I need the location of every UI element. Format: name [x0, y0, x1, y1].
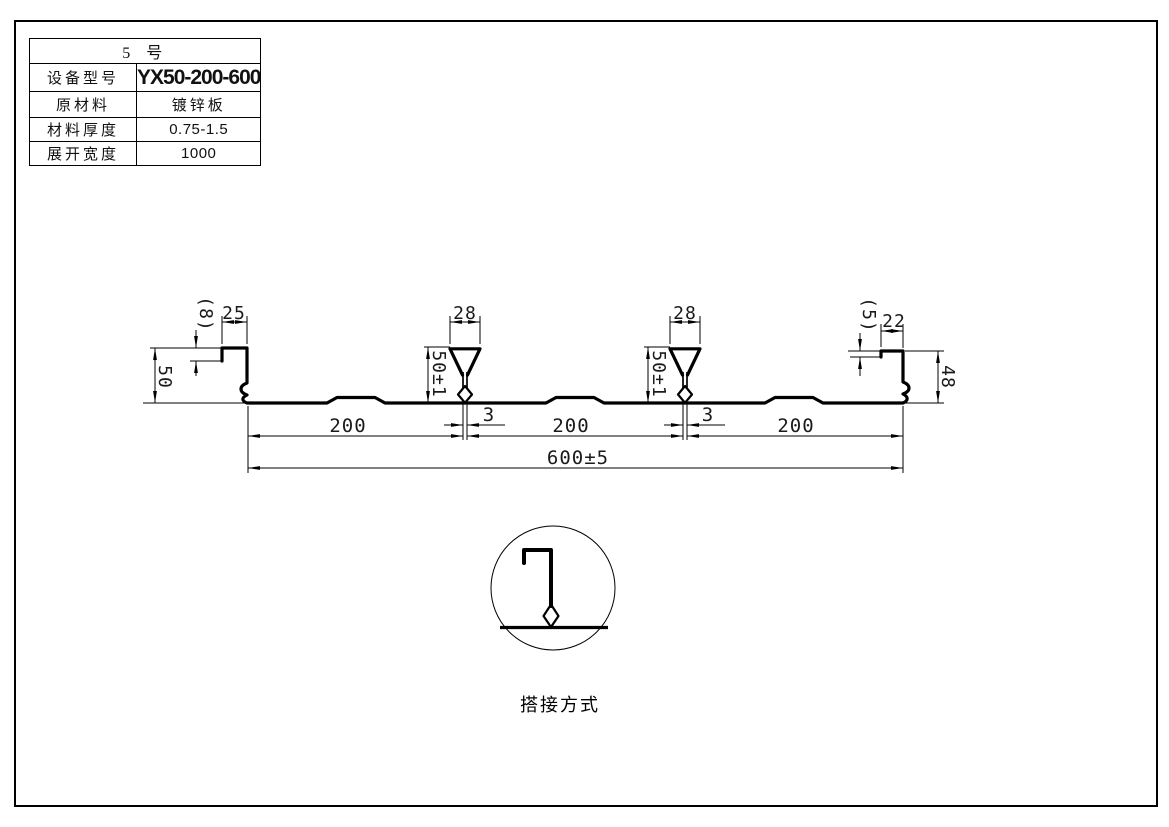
- detail-seam-profile: [524, 550, 551, 606]
- extension-line: [848, 351, 881, 357]
- rib-crimp-diamond: [458, 386, 472, 403]
- dim-rib2-width: 28: [673, 303, 697, 324]
- dim-rib1-width: 28: [453, 303, 477, 324]
- dim-left-height: 50: [154, 365, 175, 389]
- rib-top-triangle: [450, 349, 480, 375]
- rib-seam-tails: [683, 404, 687, 440]
- dim-left-flange: 25: [222, 303, 246, 324]
- profile-outline: [222, 348, 909, 403]
- dim-gap1: 3: [483, 404, 495, 426]
- dim-right-flange: 22: [882, 311, 906, 332]
- dim-rib2-height: 50±1: [648, 350, 669, 397]
- detail-caption: 搭接方式: [520, 695, 600, 715]
- rib-top-triangle: [670, 349, 700, 375]
- dim-right-lip: (5): [858, 297, 879, 333]
- dim-right-height: 48: [937, 365, 958, 389]
- rib-1: [450, 349, 480, 440]
- dim-overall-width: 600±5: [547, 447, 609, 469]
- dim-span2: 200: [552, 415, 589, 437]
- rib-2: [670, 349, 700, 440]
- dim-rib1-height: 50±1: [428, 350, 449, 397]
- dim-gap2: 3: [702, 404, 714, 426]
- dim-span1: 200: [329, 415, 366, 437]
- dim-left-lip: (8): [195, 296, 216, 332]
- rib-crimp-diamond: [678, 386, 692, 403]
- lap-joint-detail: 搭接方式: [491, 526, 615, 715]
- dimensions: 50 (8) 25 28 28 50±1 50±1 (5): [143, 296, 958, 473]
- profile-drawing-svg: 50 (8) 25 28 28 50±1 50±1 (5): [0, 0, 1169, 827]
- rib-seam-tails: [463, 404, 467, 440]
- dim-span3: 200: [777, 415, 814, 437]
